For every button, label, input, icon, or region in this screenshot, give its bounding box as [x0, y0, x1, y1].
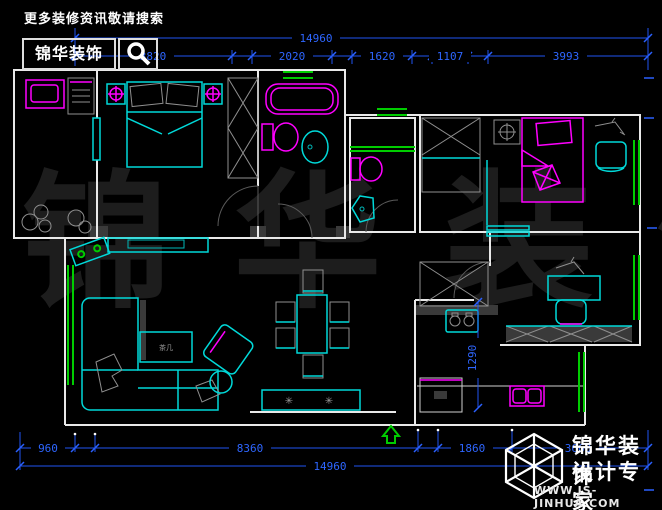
armchair — [202, 323, 255, 376]
kitchen-dim-1290: 1290 — [466, 298, 482, 412]
console-star-icon: ✳ — [325, 396, 333, 407]
chair — [556, 300, 586, 324]
wardrobe — [422, 118, 487, 225]
dining-table — [297, 295, 327, 353]
dining-chairs — [276, 270, 349, 378]
bathtub — [266, 84, 338, 114]
magnifier-icon — [120, 40, 156, 68]
ceiling-lamp-icon — [494, 120, 520, 144]
console-star-icon: ✳ — [285, 396, 293, 407]
dim-bottom-seg-1: 960 — [38, 442, 58, 455]
dim-top-seg-2: 2020 — [279, 50, 306, 63]
dim-bottom-seg-3: 1860 — [459, 442, 486, 455]
single-bed — [522, 118, 583, 202]
washing-machine — [26, 80, 64, 108]
living-room: 茶几 — [70, 237, 255, 410]
plants — [22, 205, 91, 233]
dim-top-seg-3: 1620 — [369, 50, 396, 63]
sink — [510, 386, 544, 406]
entrance-arrow-icon — [383, 426, 399, 443]
kitchen: 1290 — [420, 298, 544, 412]
dining-area: ✳ ✳ — [262, 270, 360, 410]
dim-top-seg-5: 3993 — [553, 50, 580, 63]
chair — [596, 142, 626, 171]
dim-top-total: 14960 — [299, 32, 332, 45]
toilet — [351, 157, 382, 181]
footer-website: WWW.JS-JINHUA.COM — [534, 484, 662, 510]
wash-basin — [352, 196, 374, 222]
top-dimensions: 14960 3820 2020 1620 1107 3993 — [71, 28, 652, 70]
coffee-table-label: 茶几 — [159, 343, 173, 352]
desk — [548, 257, 600, 300]
dim-kitchen-vertical: 1290 — [466, 345, 479, 372]
brand-logo-box: 锦华装饰 — [22, 38, 116, 70]
dim-bottom-total: 14960 — [313, 460, 346, 473]
cabinet — [68, 78, 94, 114]
dim-bottom-seg-2: 8360 — [237, 442, 264, 455]
bathroom-1 — [262, 84, 338, 163]
brand-logo-text: 锦华装饰 — [35, 44, 103, 63]
utility-room — [22, 78, 94, 233]
wash-basin — [302, 131, 328, 163]
side-table — [70, 237, 110, 265]
sofa — [82, 298, 232, 410]
master-bedroom — [107, 78, 258, 178]
floorplan-image: 锦 华 装 饰 — [0, 0, 662, 510]
coffee-table: 茶几 — [140, 332, 192, 362]
wall-piers — [90, 226, 632, 360]
bedroom-2 — [422, 118, 626, 225]
fridge — [420, 378, 462, 412]
console-table: ✳ ✳ — [262, 390, 360, 410]
tv-console — [108, 238, 208, 252]
search-tagline: 更多装修资讯敬请搜索 — [24, 8, 164, 27]
search-box — [118, 38, 158, 70]
double-bed — [127, 82, 202, 167]
bathroom-2 — [351, 157, 382, 222]
dim-top-seg-4: 1107 — [437, 50, 464, 63]
windows — [68, 72, 639, 412]
toilet — [262, 123, 298, 151]
desk-lamp-sketch — [595, 118, 625, 135]
wardrobe — [228, 78, 258, 178]
footer-brand-logo: 锦华装饰 设计专家 WWW.JS-JINHUA.COM — [500, 428, 662, 508]
